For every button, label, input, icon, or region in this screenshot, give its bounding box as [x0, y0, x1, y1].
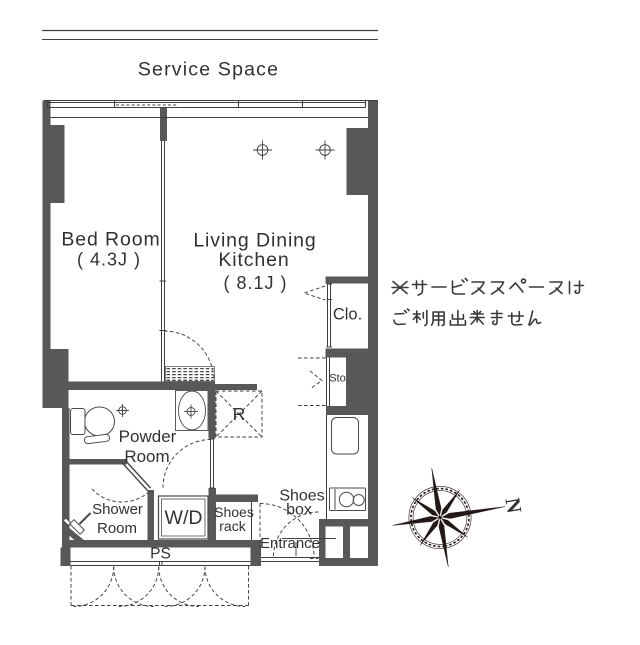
svg-text:Kitchen: Kitchen — [218, 249, 289, 271]
svg-text:Room: Room — [124, 447, 169, 466]
svg-text:Room: Room — [97, 520, 137, 537]
svg-text:Powder: Powder — [119, 427, 177, 446]
svg-text:Clo.: Clo. — [333, 306, 362, 324]
svg-text:PS: PS — [150, 546, 171, 563]
svg-text:box: box — [286, 502, 312, 519]
svg-text:rack: rack — [219, 518, 246, 534]
svg-text:Bed Room: Bed Room — [61, 229, 160, 251]
svg-text:Entrance: Entrance — [260, 535, 320, 552]
svg-text:Shower: Shower — [92, 501, 143, 518]
svg-text:( 8.1J ): ( 8.1J ) — [223, 273, 287, 293]
svg-text:Service Space: Service Space — [138, 59, 279, 81]
svg-text:R: R — [233, 404, 246, 424]
svg-text:W/D: W/D — [165, 507, 203, 529]
svg-text:( 4.3J ): ( 4.3J ) — [77, 250, 141, 270]
svg-text:Sto.: Sto. — [329, 373, 349, 385]
